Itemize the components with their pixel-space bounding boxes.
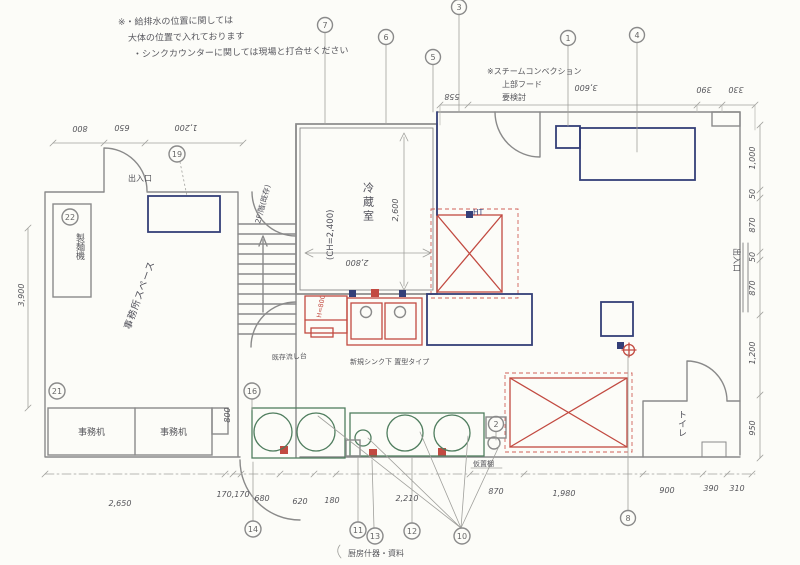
dim-text: 558 xyxy=(444,92,459,101)
ref-number: 7 xyxy=(322,21,327,30)
entrance-right-label: 出入口 xyxy=(732,248,742,272)
dim-text: 870 xyxy=(748,280,757,295)
new-sink-label: 新規シンク下 置型タイプ xyxy=(350,357,429,366)
dim-text: 650 xyxy=(114,123,129,132)
drain-marker-icon xyxy=(349,290,356,297)
drain-marker-icon xyxy=(617,342,624,349)
dim-text: 1,200 xyxy=(748,342,757,365)
ref-number: 6 xyxy=(383,33,388,42)
dim-text: 170,170 xyxy=(216,490,249,499)
desk-label: 事務机 xyxy=(78,426,105,438)
drain-marker-icon xyxy=(466,211,473,218)
steam-convection-note-line1: ※スチームコンベクション xyxy=(487,67,581,76)
dim-text: 2,600 xyxy=(391,199,400,222)
dim-text: 1,980 xyxy=(553,489,576,498)
dim-text: 1,000 xyxy=(748,147,757,170)
temp-shelf-label: 仮置棚 xyxy=(473,459,494,468)
dim-text: 1,200 xyxy=(175,123,198,132)
floorplan-canvas: 7 6 3 5 1 4 19 22 21 16 2 8 14 11 13 12 … xyxy=(0,0,800,565)
dim-text: 870 xyxy=(488,487,503,496)
dim-text: 800 xyxy=(72,124,87,133)
dim-text: 50 xyxy=(748,189,757,199)
cold-room-label: 冷蔵室 xyxy=(362,182,375,224)
ceiling-height-label: (CH=2,400) xyxy=(326,210,336,260)
ref-number: 11 xyxy=(353,526,363,535)
scanned-floorplan-page: 7 6 3 5 1 4 19 22 21 16 2 8 14 11 13 12 … xyxy=(0,0,800,565)
ht-label: HT xyxy=(473,208,484,217)
ref-number: 3 xyxy=(456,3,461,12)
ref-number: 13 xyxy=(370,532,380,541)
noodle-machine-label: 製麺機 xyxy=(74,232,85,261)
dim-text: 180 xyxy=(324,496,339,505)
dim-text: 680 xyxy=(254,494,269,503)
dim-text: 50 xyxy=(748,252,757,262)
dim-text: 620 xyxy=(292,497,307,506)
dim-text: 2,650 xyxy=(109,499,132,508)
ref-number: 12 xyxy=(407,527,417,536)
dim-text: 330 xyxy=(728,85,743,94)
dim-text: 3,900 xyxy=(17,284,26,307)
desk-label: 事務机 xyxy=(160,426,187,438)
dim-text: 3,600 xyxy=(575,83,598,92)
ref-number: 5 xyxy=(430,53,435,62)
ref-number: 21 xyxy=(52,387,62,396)
entrance-top-label: 出入口 xyxy=(128,173,152,183)
dim-text: 390 xyxy=(696,85,711,94)
ref-number: 8 xyxy=(625,514,630,523)
existing-sink-label: 既存流し台 xyxy=(272,351,307,362)
supply-marker-icon xyxy=(371,289,379,297)
dim-text: 2,800 xyxy=(346,258,369,267)
ref-number: 2 xyxy=(493,420,498,429)
ref-number: 1 xyxy=(565,34,570,43)
ref-number: 22 xyxy=(65,213,75,222)
equipment-docs-note: 厨房什器・資料 xyxy=(348,548,404,558)
steam-convection-note-line3: 要検討 xyxy=(502,92,526,102)
ref-number: 16 xyxy=(247,387,257,396)
ref-number: 19 xyxy=(172,150,182,159)
dim-text: 390 xyxy=(703,484,718,493)
dim-text: 310 xyxy=(729,484,744,493)
ref-number: 14 xyxy=(248,525,258,534)
steam-convection-note-line2: 上部フード xyxy=(502,79,542,89)
dim-text: 900 xyxy=(659,486,674,495)
toilet-label: トイレ xyxy=(676,410,687,437)
dim-text: 800 xyxy=(223,407,232,422)
drain-marker-icon xyxy=(399,290,406,297)
dim-text: 950 xyxy=(748,420,757,435)
ref-number: 10 xyxy=(457,532,467,541)
dim-text: 870 xyxy=(748,217,757,232)
dim-text: 2,210 xyxy=(396,494,419,503)
ref-number: 4 xyxy=(634,31,639,40)
